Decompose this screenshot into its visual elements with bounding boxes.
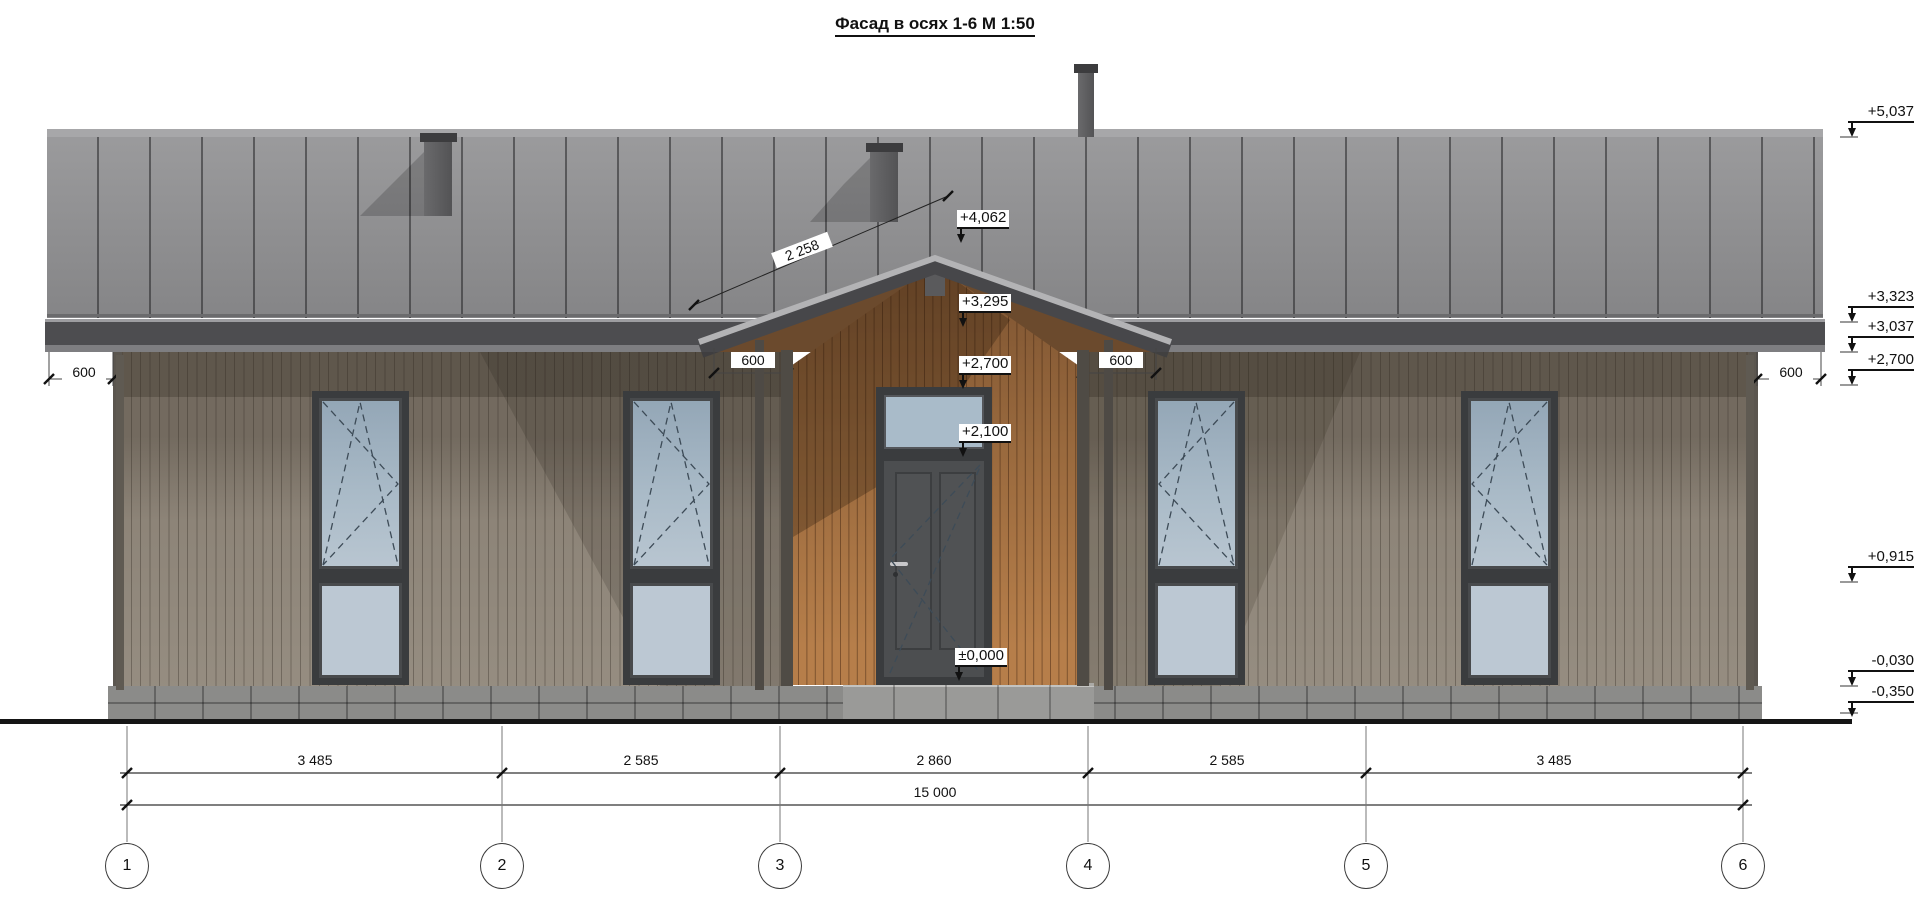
elevation-value: +4,062 (957, 210, 1009, 229)
down-arrow-icon (955, 672, 963, 681)
downspout-porch-right (1104, 340, 1113, 690)
elevation-value: +3,037 (1848, 319, 1914, 338)
door-opening-symbol (884, 461, 984, 677)
elevation-value: +0,915 (1848, 549, 1914, 568)
dim-overhang-right: 600 (1769, 364, 1813, 380)
down-arrow-icon (959, 318, 967, 327)
level-ticks (1840, 137, 1858, 713)
down-arrow-icon (959, 380, 967, 389)
window-2-opening-symbol (630, 398, 713, 569)
window-1 (312, 391, 409, 685)
down-arrow-icon (1848, 573, 1856, 582)
window-4-lower-sash (1468, 583, 1551, 678)
dim-axis-2-3: 2 585 (610, 752, 672, 768)
window-2-lower-sash (630, 583, 713, 678)
window-3 (1148, 391, 1245, 685)
chimney-left-shadow (360, 152, 424, 216)
dim-axis-1-2: 3 485 (284, 752, 346, 768)
elevation-value: -0,350 (1848, 684, 1914, 703)
downspout-porch-left (755, 340, 764, 690)
axis-bubble-4: 4 (1066, 843, 1110, 889)
downspout-corner-right (1746, 355, 1754, 690)
window-2 (623, 391, 720, 685)
dim-overhang-left: 600 (62, 364, 106, 380)
elevation-mark-window-top: +2,700 (1848, 352, 1914, 371)
down-arrow-icon (1848, 128, 1856, 137)
window-4 (1461, 391, 1558, 685)
down-arrow-icon (1848, 708, 1856, 717)
elevation-value: +3,295 (959, 294, 1011, 313)
dim-axis-4-5: 2 585 (1196, 752, 1258, 768)
elevation-value: +2,700 (1848, 352, 1914, 371)
elevation-value: +3,323 (1848, 289, 1914, 308)
elevation-value: -0,030 (1848, 653, 1914, 672)
down-arrow-icon (959, 448, 967, 457)
axis-bubble-1: 1 (105, 843, 149, 889)
axis-bubble-3: 3 (758, 843, 802, 889)
elevation-mark-ground: -0,350 (1848, 684, 1914, 703)
elevation-mark-soffit: +3,037 (1848, 319, 1914, 338)
porch-post-right (1077, 350, 1089, 686)
elevation-mark-wall-base: -0,030 (1848, 653, 1914, 672)
dim-overhang-gable-right: 600 (1099, 352, 1143, 368)
elevation-value: +5,037 (1848, 104, 1914, 123)
axis-bubble-5: 5 (1344, 843, 1388, 889)
elevation-mark-eaves-top: +3,323 (1848, 289, 1914, 308)
elevation-mark-zero-level: ±0,000 (955, 648, 1007, 667)
elevation-value: +2,100 (959, 424, 1011, 443)
window-1-lower-sash (319, 583, 402, 678)
down-arrow-icon (1848, 376, 1856, 385)
window-4-opening-symbol (1468, 398, 1551, 569)
elevation-mark-door-leaf-top: +2,100 (959, 424, 1011, 443)
down-arrow-icon (1848, 343, 1856, 352)
dim-axis-3-4: 2 860 (903, 752, 965, 768)
downspout-corner-left (116, 355, 124, 690)
window-3-lower-sash (1155, 583, 1238, 678)
axis-bubble-6: 6 (1721, 843, 1765, 889)
dim-axis-5-6: 3 485 (1523, 752, 1585, 768)
chimney-center-shadow (810, 158, 870, 222)
elevation-mark-door-top: +2,700 (959, 356, 1011, 375)
window-3-opening-symbol (1155, 398, 1238, 569)
dim-total-width: 15 000 (900, 784, 970, 800)
facade-drawing-canvas: Фасад в осях 1-6 М 1:50 (0, 0, 1920, 904)
dim-overhang-gable-left: 600 (731, 352, 775, 368)
axis-bubble-2: 2 (480, 843, 524, 889)
elevation-value: +2,700 (959, 356, 1011, 375)
elevation-mark-gable-soffit: +3,295 (959, 294, 1011, 313)
window-1-opening-symbol (319, 398, 402, 569)
elevation-mark-ridge: +5,037 (1848, 104, 1914, 123)
elevation-mark-sill: +0,915 (1848, 549, 1914, 568)
porch-post-left (781, 350, 793, 686)
elevation-value: ±0,000 (955, 648, 1007, 667)
down-arrow-icon (957, 234, 965, 243)
elevation-mark-gable-peak: +4,062 (957, 210, 1009, 229)
